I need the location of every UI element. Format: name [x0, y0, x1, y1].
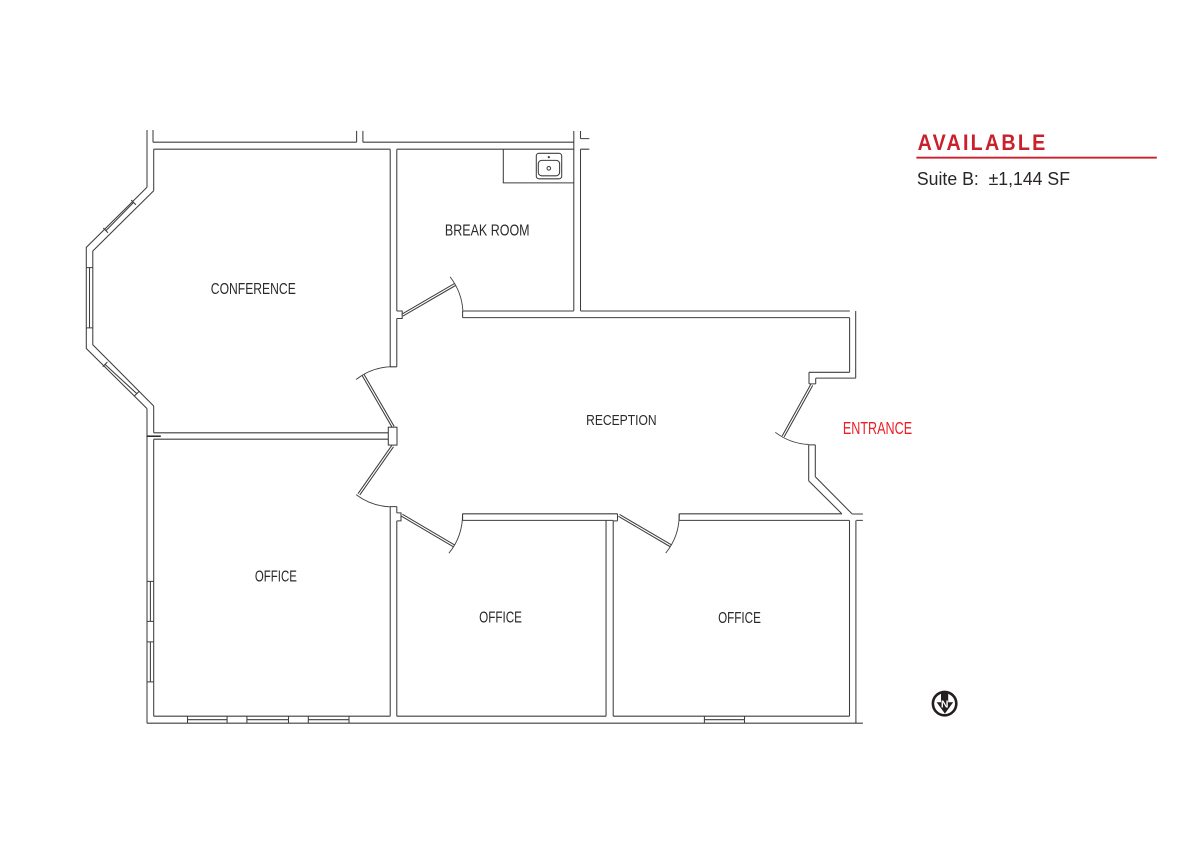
svg-text:RECEPTION: RECEPTION	[586, 413, 657, 429]
svg-text:BREAK ROOM: BREAK ROOM	[445, 223, 530, 240]
svg-text:OFFICE: OFFICE	[255, 569, 297, 586]
svg-text:OFFICE: OFFICE	[479, 610, 522, 627]
svg-text:ENTRANCE: ENTRANCE	[843, 418, 912, 438]
svg-text:N: N	[941, 698, 949, 710]
svg-text:OFFICE: OFFICE	[718, 610, 761, 627]
svg-text:Suite B: ±1,144 SF: Suite B: ±1,144 SF	[917, 169, 1070, 189]
svg-text:AVAILABLE: AVAILABLE	[918, 130, 1048, 155]
svg-text:CONFERENCE: CONFERENCE	[211, 281, 296, 298]
